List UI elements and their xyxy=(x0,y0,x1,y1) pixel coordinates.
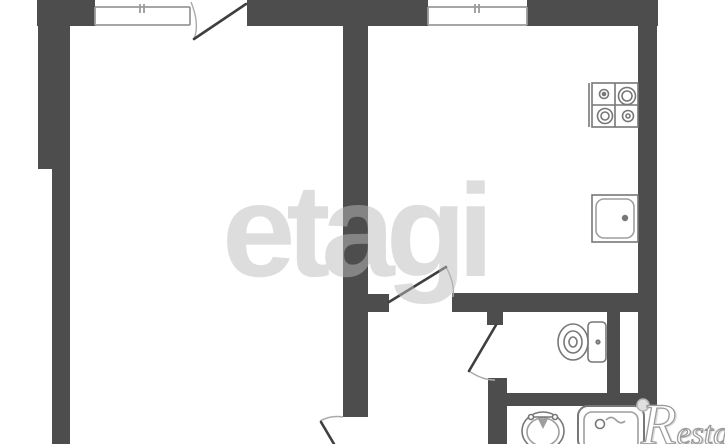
corner-logo-dot xyxy=(637,399,649,411)
door-swing-icon xyxy=(321,422,334,444)
burner-small2-inner xyxy=(626,114,630,118)
balcony-door-arc xyxy=(191,2,196,39)
window-icon xyxy=(428,4,527,25)
left-wall-lower xyxy=(52,168,70,444)
burner-medium-inner xyxy=(601,112,609,120)
washbasin-icon xyxy=(522,412,564,444)
toilet-icon xyxy=(558,322,606,362)
kitchen-sink-drain xyxy=(623,216,628,221)
washing-machine-icon xyxy=(578,406,644,444)
door-swing-icon xyxy=(389,267,446,302)
window-icon xyxy=(95,4,190,25)
balcony-door-leaf xyxy=(194,4,246,39)
floor-plan-image: etagi Restate xyxy=(0,0,725,444)
kitchen-wall-right xyxy=(452,293,638,312)
bathroom-top-wall xyxy=(488,393,638,406)
wc-door-jamb xyxy=(487,312,503,325)
door-swing-icon xyxy=(469,325,496,371)
burner-large-inner xyxy=(622,91,632,101)
burner-small-dot xyxy=(603,93,606,96)
top-wall-middle xyxy=(247,0,428,26)
kitchen-sink-basin xyxy=(596,199,634,238)
floor-plan-svg xyxy=(0,0,725,444)
walls xyxy=(37,0,658,444)
toilet-bowl-inner xyxy=(569,337,577,347)
washing-machine-knob xyxy=(596,420,605,429)
kitchen-door-leaf xyxy=(389,267,446,302)
left-wall-upper xyxy=(38,0,70,169)
wc-door-leaf xyxy=(469,325,496,371)
right-wall xyxy=(638,0,657,406)
room-door-leaf xyxy=(321,422,334,444)
washbasin-handle-left xyxy=(529,415,534,420)
center-wall xyxy=(343,25,368,417)
toilet-tank-button xyxy=(596,340,600,344)
wc-right-wall xyxy=(607,312,620,406)
wc-left-wall xyxy=(488,378,507,444)
kitchen-door-arc xyxy=(446,267,453,297)
stove-4-burner-icon xyxy=(589,83,638,127)
door-swing-icon xyxy=(194,4,246,39)
room-door-arc xyxy=(320,417,343,422)
kitchen-wall-left-stub xyxy=(368,294,389,312)
fixtures xyxy=(522,83,649,444)
washbasin-handle-right xyxy=(553,415,558,420)
kitchen-sink-icon xyxy=(592,195,638,242)
